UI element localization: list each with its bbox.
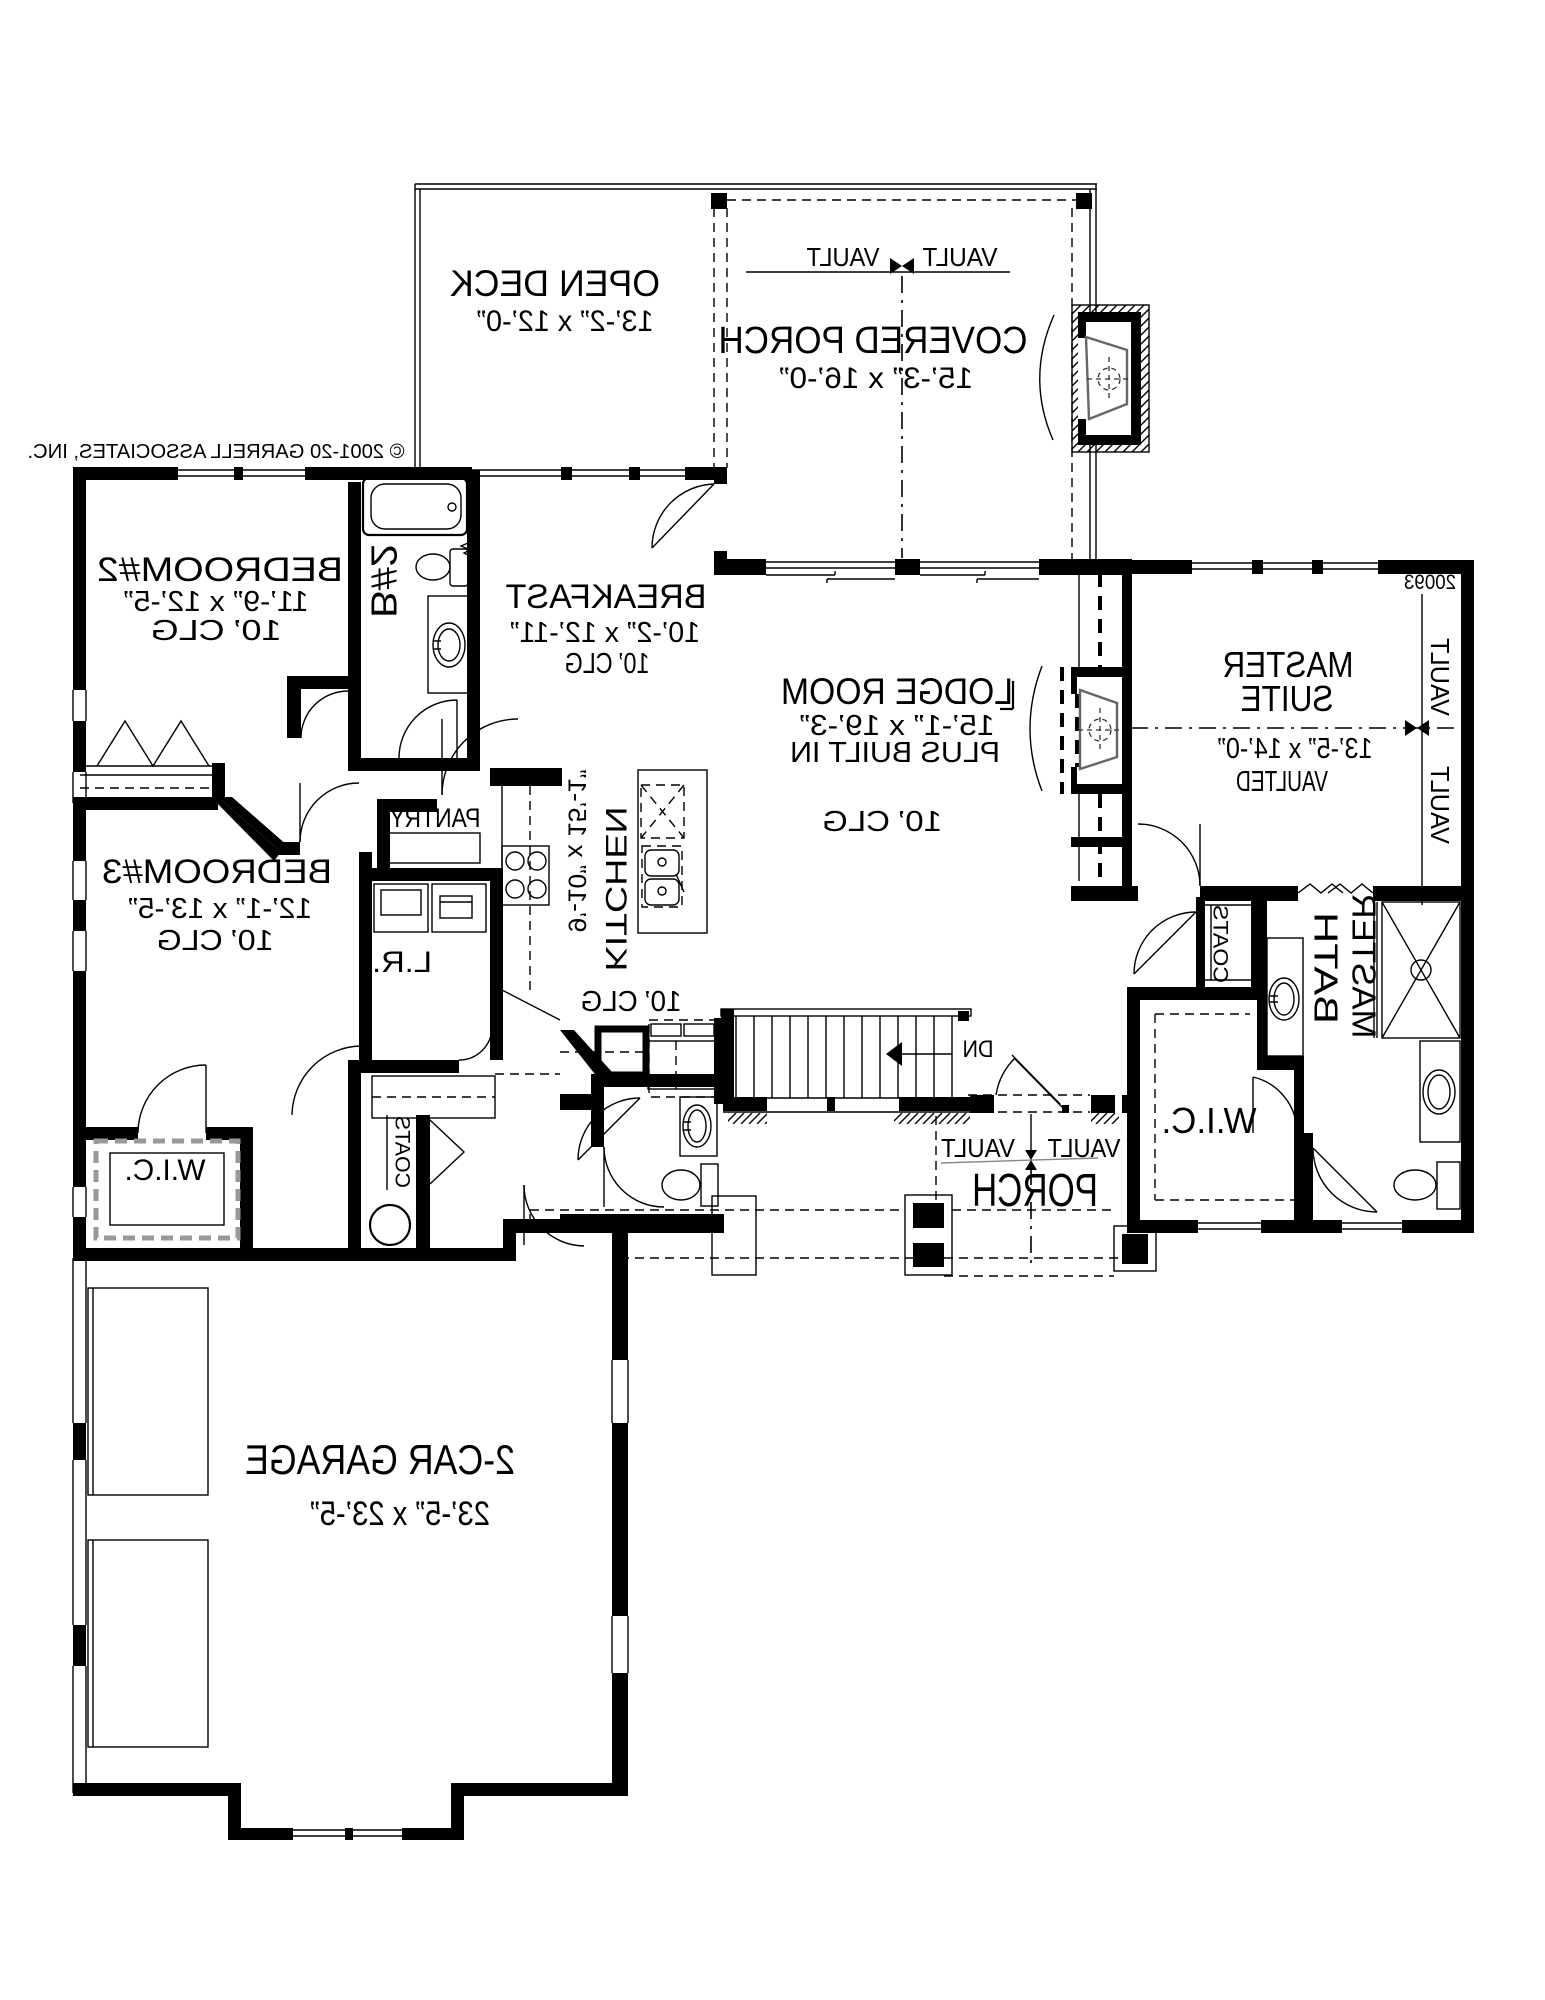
svg-text:12’-1” x 13’-5”: 12’-1” x 13’-5”	[128, 893, 312, 925]
svg-text:LODGE ROOM: LODGE ROOM	[781, 671, 1013, 712]
svg-text:W.I.C.: W.I.C.	[1162, 1100, 1257, 1141]
svg-text:VAULT: VAULT	[1425, 766, 1455, 844]
svg-text:PLUS BUILT IN: PLUS BUILT IN	[790, 737, 1000, 769]
svg-text:BATH: BATH	[1307, 912, 1344, 1024]
svg-text:2-CAR GARAGE: 2-CAR GARAGE	[245, 1436, 515, 1483]
svg-text:23’-5” x 23’-5”: 23’-5” x 23’-5”	[310, 1495, 490, 1533]
svg-text:KITCHEN: KITCHEN	[599, 807, 632, 972]
svg-text:COATS: COATS	[1208, 905, 1231, 983]
svg-text:VAULT: VAULT	[922, 242, 997, 272]
svg-text:10’ CLG: 10’ CLG	[157, 925, 274, 957]
svg-text:VAULT: VAULT	[941, 1133, 1015, 1163]
svg-text:L.R.: L.R.	[372, 946, 432, 979]
svg-text:10’ CLG: 10’ CLG	[822, 806, 942, 838]
svg-text:VAULT: VAULT	[806, 242, 879, 272]
svg-text:11’-9” x 12’-5”: 11’-9” x 12’-5”	[124, 586, 309, 618]
svg-text:DN: DN	[963, 1036, 994, 1063]
svg-text:15’-3” x 16’-0”: 15’-3” x 16’-0”	[779, 362, 973, 395]
svg-text:BEDROOM#2: BEDROOM#2	[97, 551, 343, 589]
svg-text:BEDROOM#3: BEDROOM#3	[102, 853, 332, 891]
svg-text:B#2: B#2	[363, 544, 404, 618]
svg-text:10’ CLG: 10’ CLG	[565, 648, 650, 680]
svg-text:VAULT: VAULT	[1425, 638, 1455, 716]
svg-text:13’-2” x 12’-0”: 13’-2” x 12’-0”	[477, 305, 654, 338]
svg-text:W.I.C.: W.I.C.	[125, 1154, 206, 1187]
svg-text:PORCH: PORCH	[972, 1164, 1098, 1216]
svg-text:SUITE: SUITE	[1241, 678, 1334, 719]
svg-text:9’-10” x 15’-1”: 9’-10” x 15’-1”	[562, 770, 590, 933]
svg-text:VAULTED: VAULTED	[1236, 766, 1328, 798]
svg-text:OPEN DECK: OPEN DECK	[450, 263, 660, 304]
svg-text:10’ CLG: 10’ CLG	[581, 986, 682, 1018]
svg-text:COVERED PORCH: COVERED PORCH	[719, 320, 1028, 362]
svg-text:10’ CLG: 10’ CLG	[151, 615, 282, 647]
svg-text:13’-5” x 14’-0”: 13’-5” x 14’-0”	[1218, 733, 1373, 765]
svg-text:PANTRY: PANTRY	[390, 803, 481, 833]
svg-text:COATS: COATS	[390, 1116, 413, 1188]
svg-text:© 2001-20 GARRELL ASSOCIATES,: © 2001-20 GARRELL ASSOCIATES, INC.	[28, 441, 405, 463]
svg-text:10’-2” x 12’-11”: 10’-2” x 12’-11”	[510, 617, 700, 649]
svg-text:BREAKFAST: BREAKFAST	[506, 578, 707, 616]
svg-text:20093: 20093	[1404, 571, 1456, 594]
